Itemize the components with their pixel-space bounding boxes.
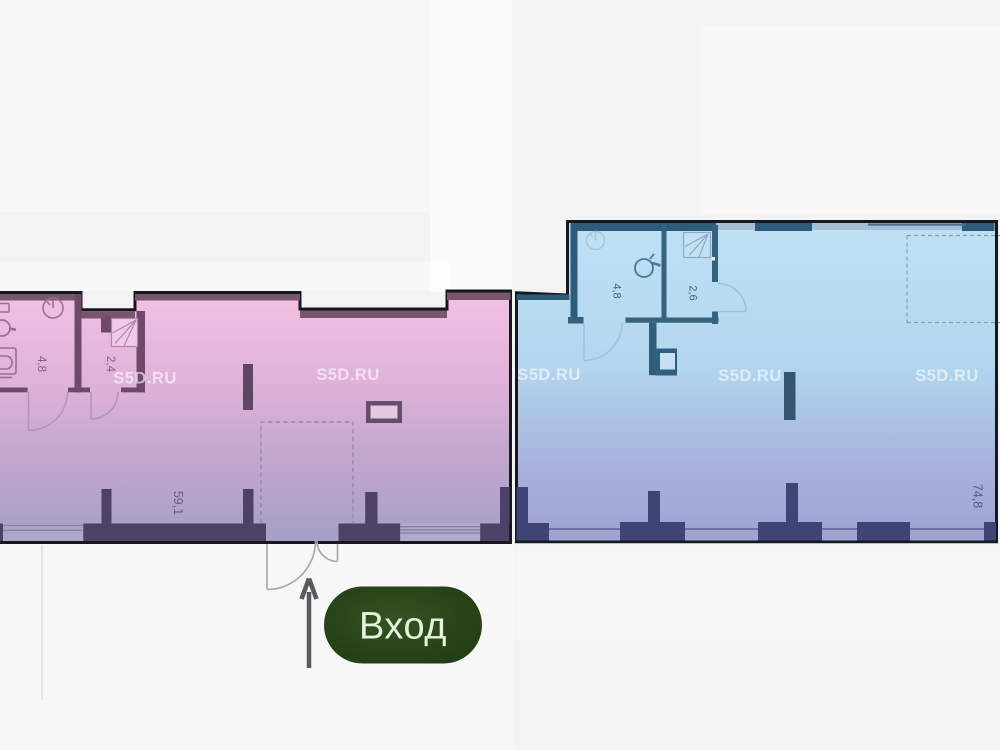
svg-text:4,8: 4,8 bbox=[611, 283, 623, 298]
svg-text:S5D.RU: S5D.RU bbox=[517, 366, 581, 384]
svg-text:S5D.RU: S5D.RU bbox=[915, 367, 979, 385]
svg-text:4,8: 4,8 bbox=[35, 356, 47, 372]
svg-text:S5D.RU: S5D.RU bbox=[718, 367, 782, 385]
svg-text:S5D.RU: S5D.RU bbox=[113, 370, 177, 388]
svg-text:59,1: 59,1 bbox=[171, 491, 185, 515]
svg-text:S5D.RU: S5D.RU bbox=[316, 366, 380, 384]
svg-text:Вход: Вход bbox=[359, 606, 447, 648]
svg-text:2,6: 2,6 bbox=[687, 285, 699, 300]
svg-text:74,8: 74,8 bbox=[971, 484, 985, 508]
